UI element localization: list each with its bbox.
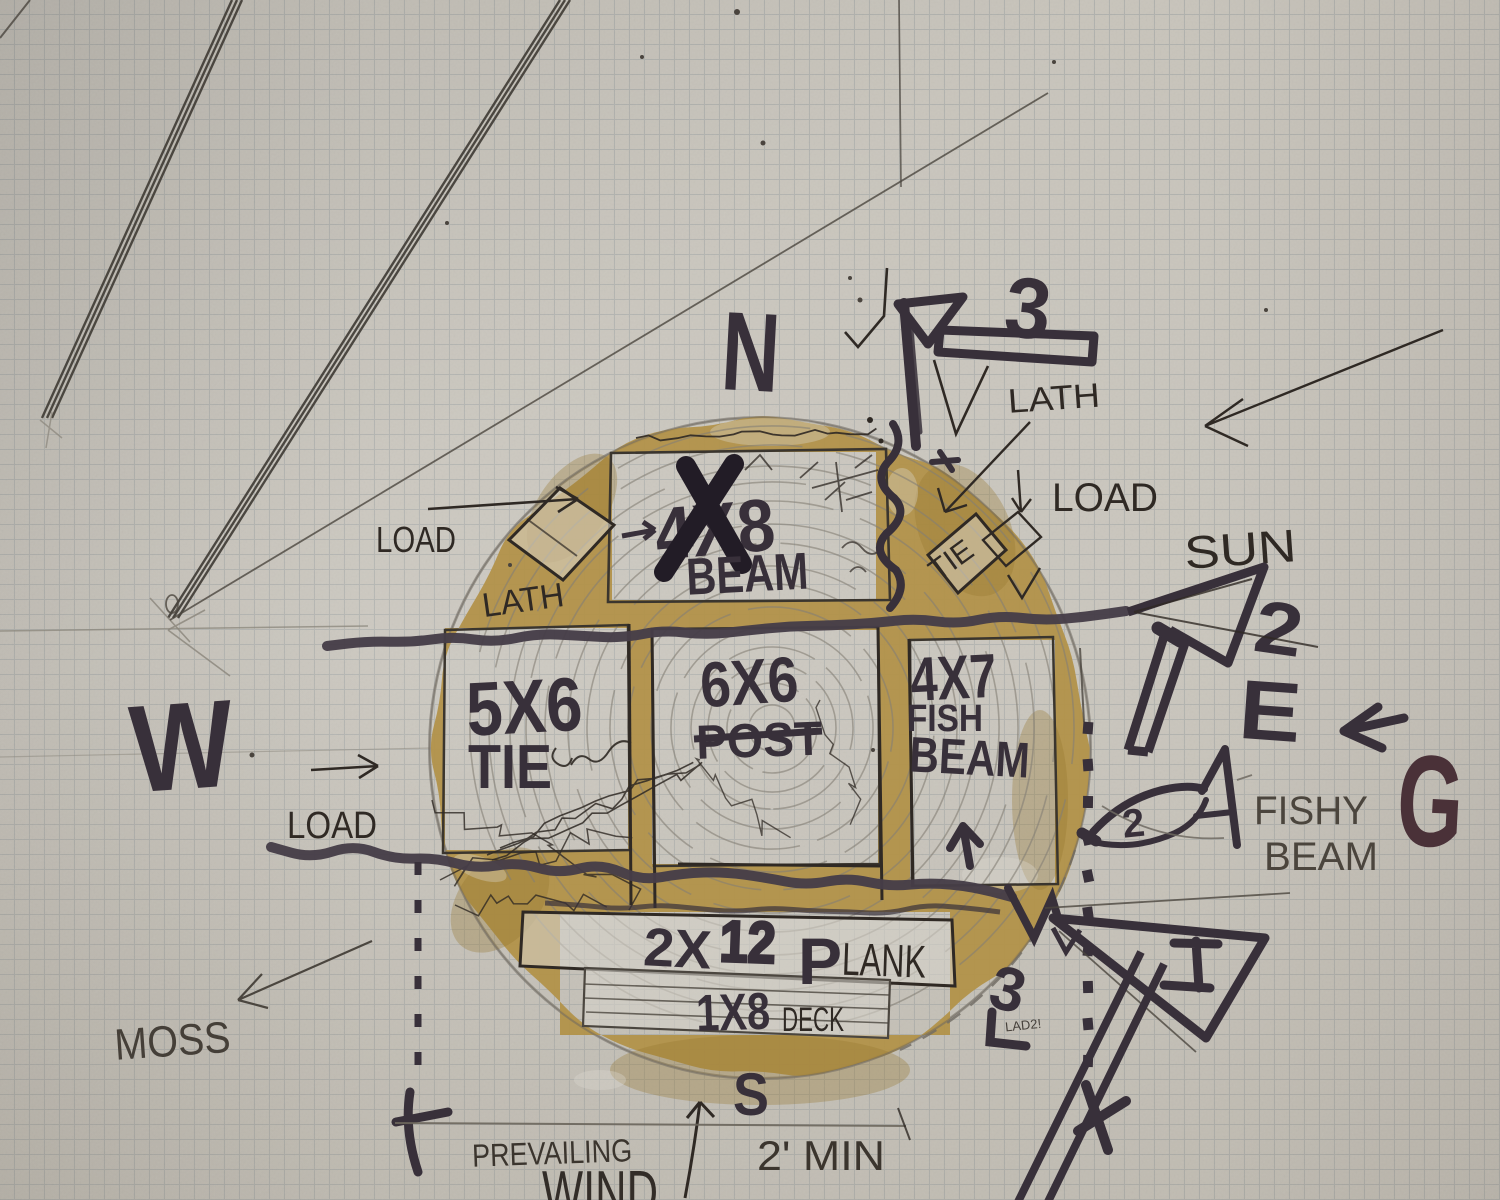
svg-text:G: G — [1394, 726, 1468, 875]
svg-text:P: P — [798, 924, 842, 998]
svg-text:E: E — [1236, 662, 1304, 760]
svg-text:6X6: 6X6 — [698, 643, 801, 722]
svg-text:W: W — [126, 674, 238, 819]
svg-text:LOAD: LOAD — [1052, 476, 1158, 520]
svg-text:S: S — [733, 1061, 769, 1128]
svg-text:12: 12 — [719, 909, 777, 976]
svg-text:BEAM: BEAM — [1264, 835, 1378, 879]
svg-text:BEAM: BEAM — [685, 542, 810, 606]
svg-text:LOAD: LOAD — [287, 805, 377, 847]
svg-text:BEAM: BEAM — [908, 726, 1031, 788]
svg-text:LOAD: LOAD — [376, 519, 456, 560]
svg-text:SUN: SUN — [1183, 519, 1298, 579]
svg-text:MOSS: MOSS — [113, 1013, 232, 1070]
svg-text:N: N — [719, 288, 783, 416]
svg-text:DECK: DECK — [782, 1001, 844, 1039]
svg-text:2X: 2X — [642, 917, 713, 980]
svg-text:1X8: 1X8 — [695, 983, 771, 1044]
svg-text:2: 2 — [1120, 801, 1147, 847]
svg-text:2' MIN: 2' MIN — [757, 1132, 885, 1179]
svg-text:FISHY: FISHY — [1254, 789, 1368, 833]
svg-text:LATH: LATH — [1007, 377, 1101, 421]
svg-text:LANK: LANK — [841, 933, 927, 988]
svg-text:WIND: WIND — [542, 1159, 658, 1200]
svg-text:TIE: TIE — [468, 733, 552, 802]
